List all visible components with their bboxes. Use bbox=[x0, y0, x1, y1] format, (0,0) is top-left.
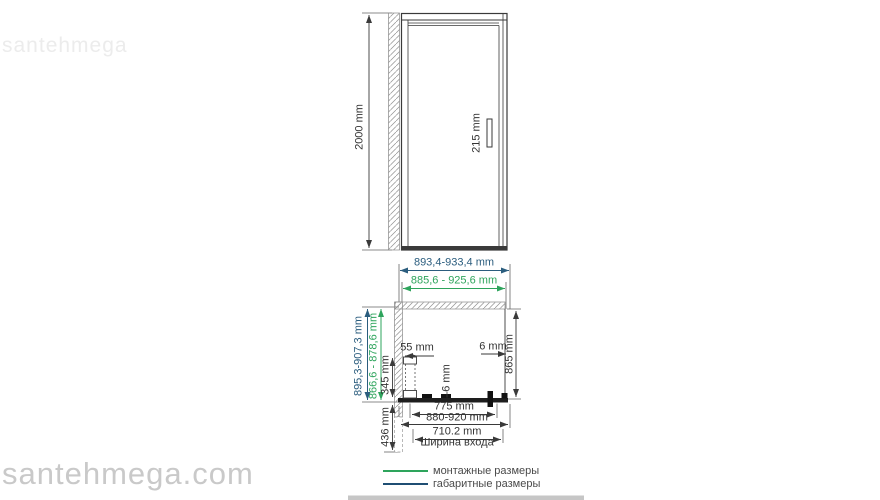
front-height-dimension: 2000 mm bbox=[355, 104, 366, 150]
watermark-bottom: santehmega.com bbox=[2, 456, 254, 492]
bottom-strip bbox=[348, 496, 584, 500]
adjustment-range-dimension: 880-920 mm bbox=[426, 413, 488, 424]
legend bbox=[383, 471, 428, 484]
wall-profile-dimension: 55 mm bbox=[400, 343, 434, 354]
inner-depth-dimension: 865 mm bbox=[505, 334, 516, 374]
handle-profile-section bbox=[488, 391, 494, 407]
legend-mounting-label: монтажные размеры bbox=[433, 465, 539, 477]
legend-overall-label: габаритные размеры bbox=[433, 478, 540, 490]
entry-width-caption: Ширина входа bbox=[420, 438, 493, 449]
front-view-drawing bbox=[362, 13, 507, 250]
glass-thickness-dimension: 6 mm bbox=[442, 364, 453, 392]
door-handle bbox=[487, 119, 492, 147]
overall-depth-dimension: 895,3-907,3 mm bbox=[354, 316, 365, 396]
handle-height-dimension: 215 mm bbox=[472, 113, 483, 153]
watermark-top: santehmega bbox=[2, 34, 128, 58]
technical-drawing-page: 2000 mm 215 mm 893,4-933,4 mm 885,6 - 92… bbox=[0, 0, 880, 500]
lower-depth-dimension: 436 mm bbox=[381, 407, 392, 447]
mounting-width-dimension: 885,6 - 925,6 mm bbox=[411, 276, 497, 287]
side-panel-depth-dimension: 345 mm bbox=[381, 355, 392, 395]
overall-width-dimension: 893,4-933,4 mm bbox=[414, 258, 494, 269]
mounting-depth-dimension: 866,6 - 878,6 mm bbox=[369, 313, 380, 399]
